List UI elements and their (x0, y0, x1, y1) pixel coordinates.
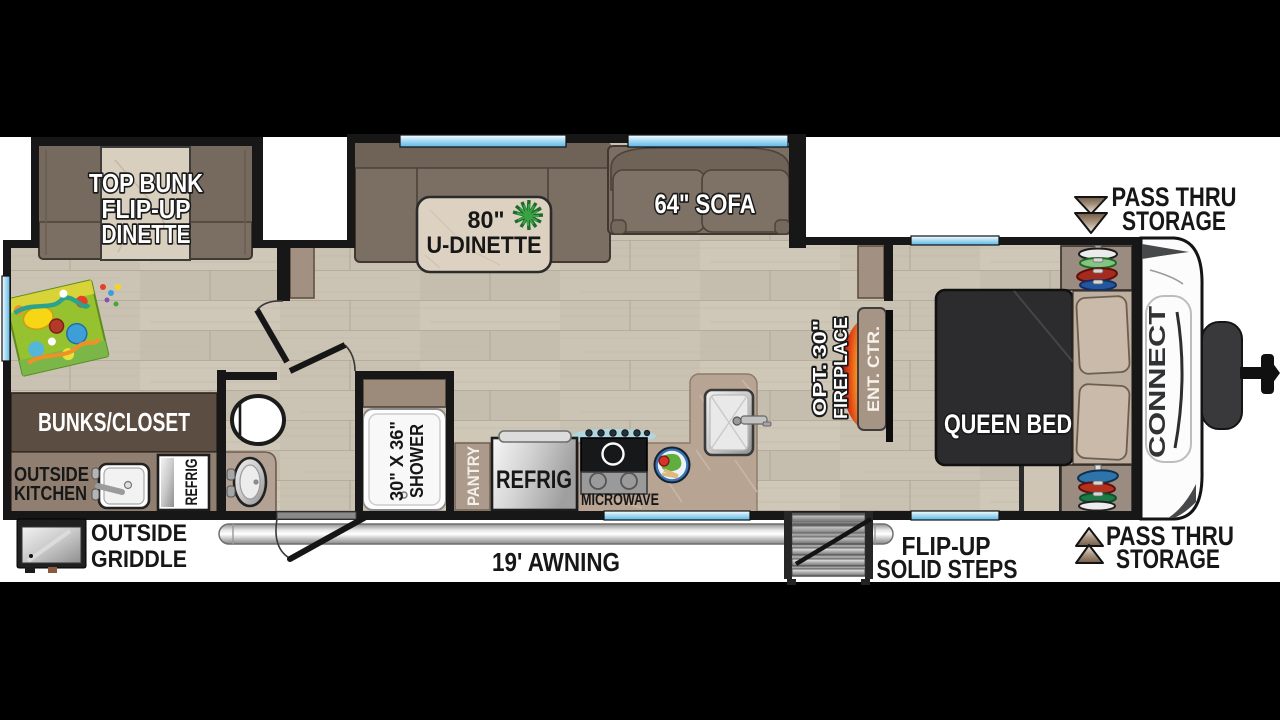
svg-text:SOLID STEPS: SOLID STEPS (877, 554, 1018, 584)
svg-text:QUEEN BED: QUEEN BED (944, 409, 1072, 439)
svg-text:KITCHEN: KITCHEN (14, 483, 87, 505)
svg-text:19' AWNING: 19' AWNING (492, 547, 620, 577)
svg-text:GRIDDLE: GRIDDLE (91, 546, 187, 573)
svg-text:STORAGE: STORAGE (1122, 206, 1226, 236)
svg-text:OUTSIDE: OUTSIDE (91, 520, 187, 547)
svg-text:REFRIG: REFRIG (496, 466, 572, 494)
svg-text:FIREPLACE: FIREPLACE (831, 317, 851, 419)
svg-text:REFRIG: REFRIG (182, 459, 201, 506)
svg-text:SHOWER: SHOWER (407, 424, 427, 498)
svg-text:BUNKS/CLOSET: BUNKS/CLOSET (38, 407, 190, 437)
svg-text:OPT. 30": OPT. 30" (810, 320, 830, 416)
svg-text:80": 80" (468, 207, 505, 234)
svg-text:STORAGE: STORAGE (1116, 544, 1220, 574)
svg-text:MICROWAVE: MICROWAVE (581, 490, 659, 509)
svg-text:PANTRY: PANTRY (464, 445, 483, 506)
svg-text:30" X 36": 30" X 36" (387, 421, 407, 501)
svg-text:U-DINETTE: U-DINETTE (427, 232, 542, 259)
svg-text:CONNECT: CONNECT (1144, 306, 1170, 458)
svg-text:64" SOFA: 64" SOFA (655, 189, 756, 219)
svg-text:DINETTE: DINETTE (102, 219, 191, 249)
svg-text:ENT. CTR.: ENT. CTR. (864, 326, 883, 412)
